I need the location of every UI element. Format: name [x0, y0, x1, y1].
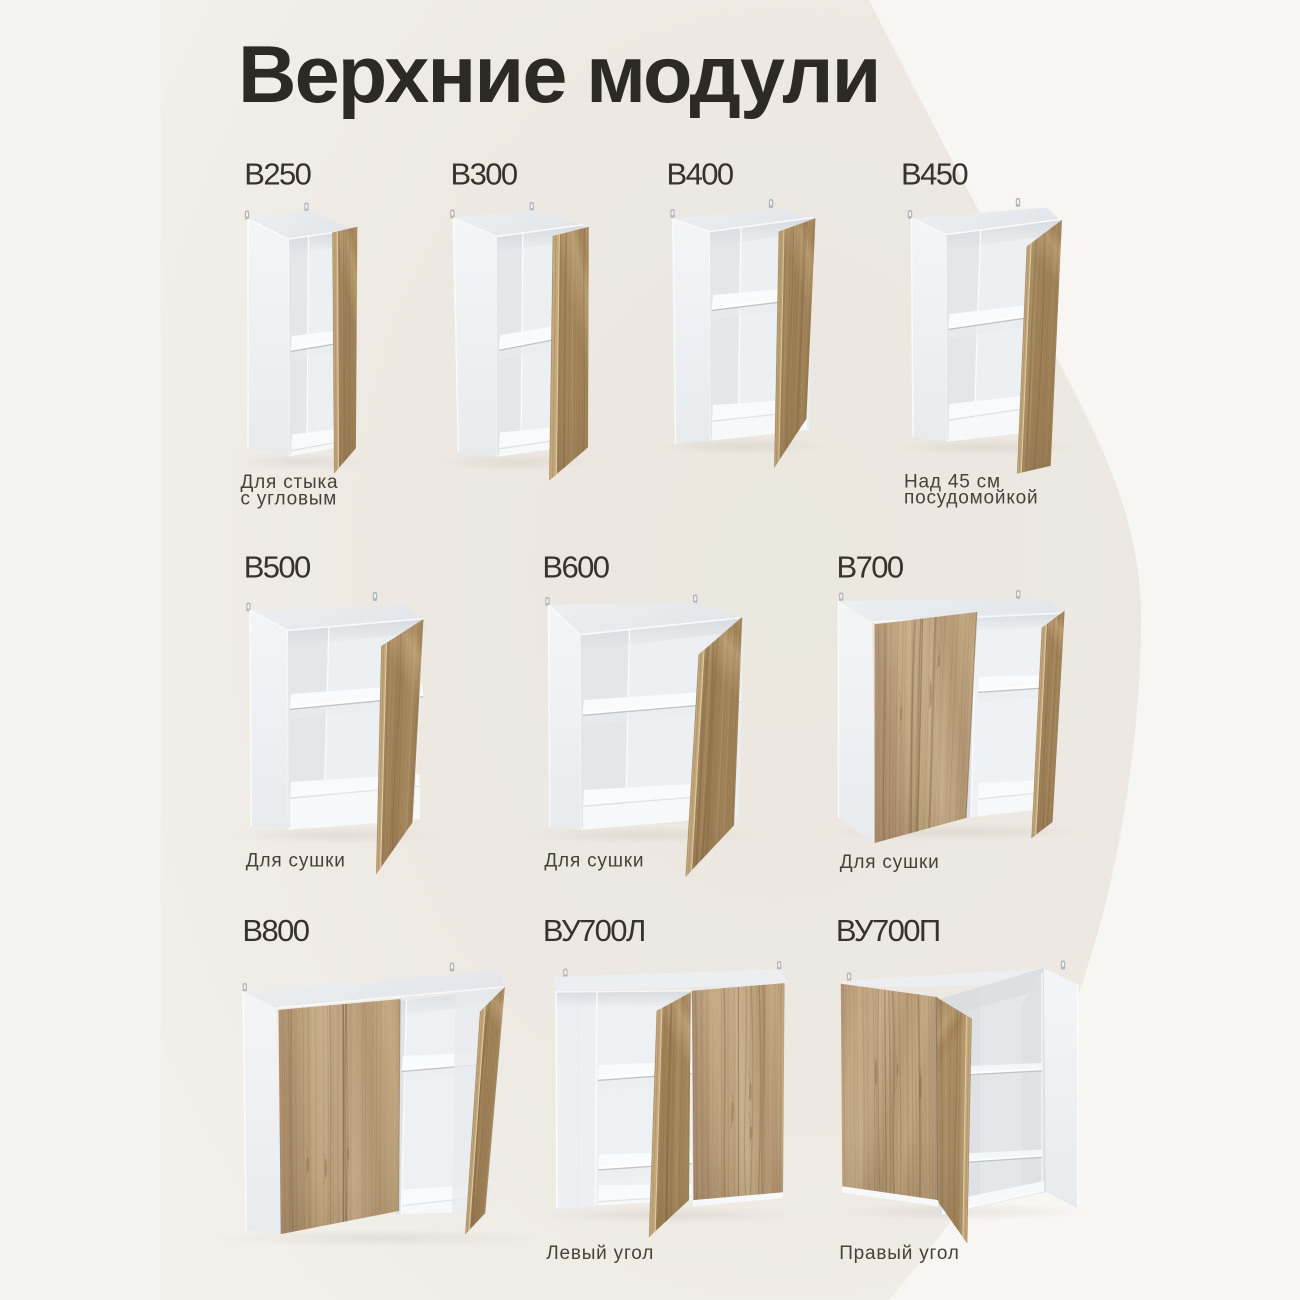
svg-text:посудомойкой: посудомойкой [904, 488, 1038, 509]
svg-text:Для сушки: Для сушки [246, 850, 346, 871]
svg-text:В400: В400 [667, 157, 734, 192]
svg-text:В450: В450 [901, 157, 968, 192]
svg-text:Для сушки: Для сушки [840, 852, 940, 873]
svg-text:В250: В250 [244, 157, 311, 192]
svg-text:Верхние модули: Верхние модули [238, 30, 880, 120]
svg-text:ВУ700Л: ВУ700Л [543, 913, 645, 948]
svg-text:ВУ700П: ВУ700П [836, 913, 940, 948]
svg-text:В700: В700 [837, 550, 904, 585]
svg-text:В600: В600 [542, 550, 609, 585]
svg-text:В300: В300 [451, 157, 518, 192]
svg-text:В500: В500 [244, 550, 311, 585]
svg-text:Левый угол: Левый угол [546, 1243, 654, 1264]
svg-text:с угловым: с угловым [241, 488, 338, 509]
svg-text:В800: В800 [242, 913, 309, 948]
svg-text:Для сушки: Для сушки [544, 850, 644, 871]
svg-text:Правый угол: Правый угол [839, 1243, 959, 1264]
